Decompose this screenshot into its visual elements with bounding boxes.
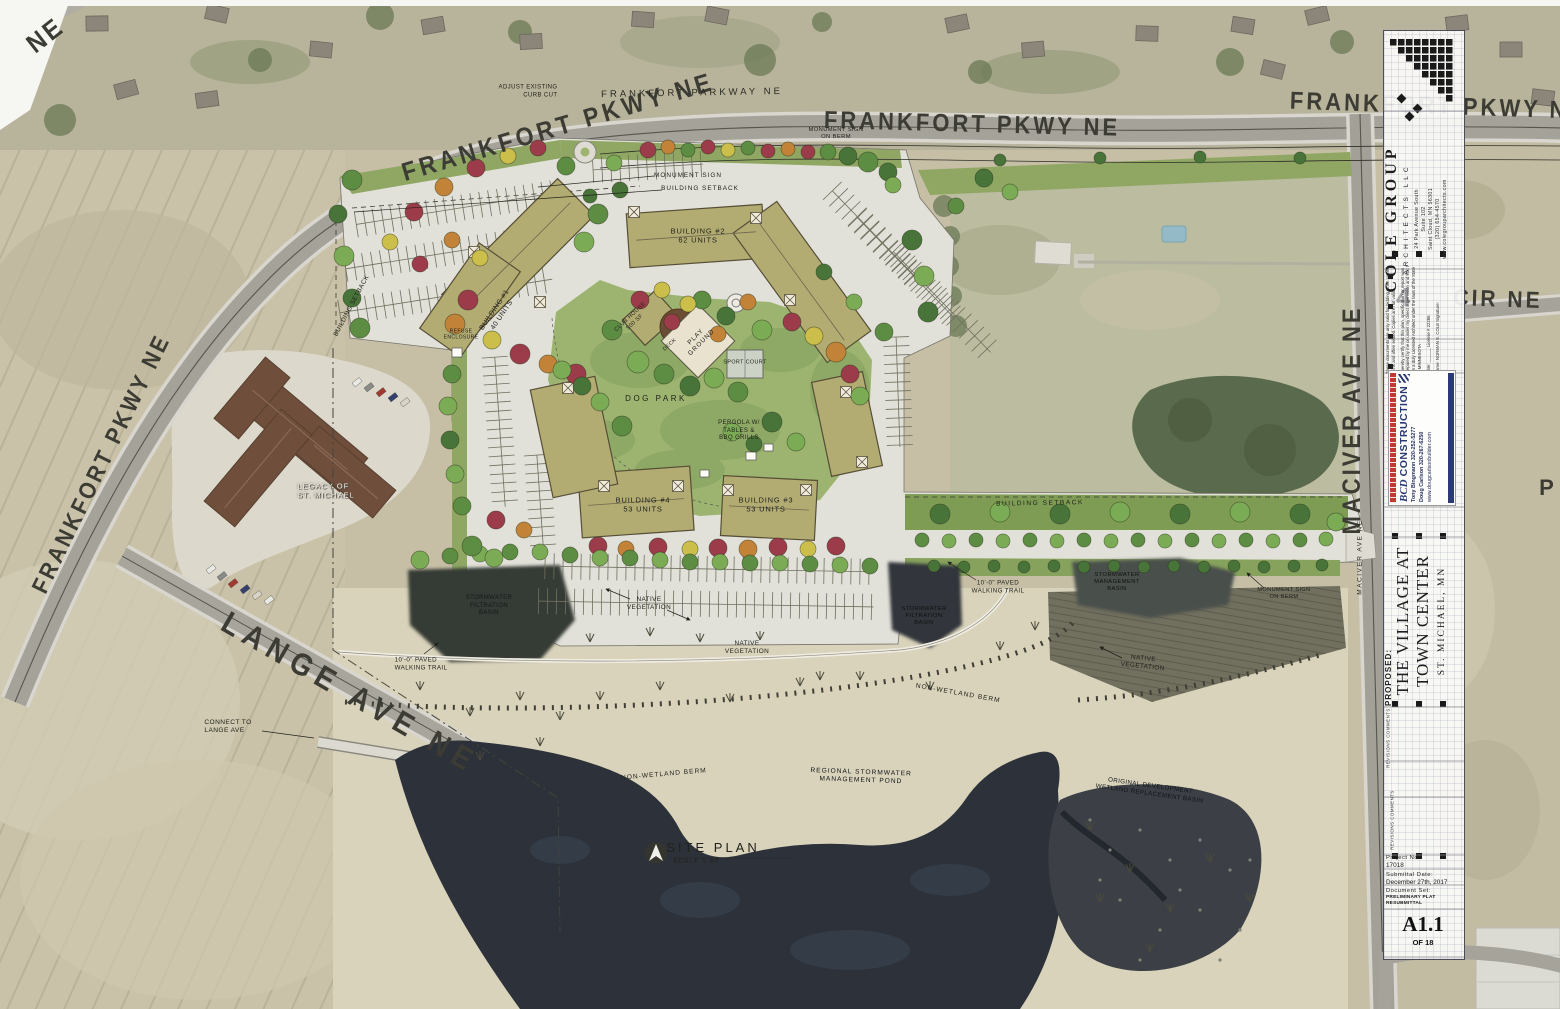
cert-statement: I hereby certify that this plan, specifi… (1400, 266, 1423, 374)
annotation-dog-park: DOG PARK (625, 394, 687, 404)
annotation-native-2: NATIVE VEGETATION (725, 640, 769, 656)
submittal-date-label: Submittal Date: (1386, 872, 1461, 879)
project-title-block: PROPOSED: THE VILLAGE AT TOWN CENTER ST.… (1383, 536, 1463, 706)
refuse-enclosure-icon (452, 348, 462, 357)
document-set-value: PRELIMINARY PLAT RESUBMITTAL (1386, 895, 1461, 907)
annotation-legacy: LEGACY OF ST. MICHAEL (297, 482, 354, 501)
site-plan-sheet: NE FRANKFORT PKWY NE FRANKFORT PKWY NE F… (0, 0, 1560, 1009)
submittal-date-value: December 27th, 2017 (1386, 879, 1461, 887)
annotation-native-1: NATIVE VEGETATION (627, 596, 671, 612)
annotation-trail-e: 10'-0" PAVED WALKING TRAIL (972, 579, 1025, 595)
construction-monogram: BCD (1398, 479, 1410, 502)
road-label-cir-ne: CIR NE (1453, 285, 1543, 314)
cert-license: License # 22286 (1426, 315, 1431, 347)
proposed-label: PROPOSED: (1384, 536, 1393, 706)
construction-name: CONSTRUCTION (1398, 386, 1410, 477)
project-city: ST. MICHAEL, MN (1437, 536, 1447, 706)
annotation-monument-nw: MONUMENT SIGN (654, 172, 722, 180)
annotation-monument-ne: MONUMENT SIGN ON BERM (808, 127, 863, 141)
annotation-connect-lange: CONNECT TO LANGE AVE (204, 719, 251, 735)
project-title-line-1: THE VILLAGE AT (1393, 536, 1413, 706)
annotation-pergola: PERGOLA W/ TABLES & BBQ GRILLS (718, 420, 760, 443)
cert-note: These documents are only valid for biddi… (1385, 266, 1397, 374)
annotation-sport-court: SPORT COURT (723, 360, 766, 367)
annotation-trail-w: 10'-0" PAVED WALKING TRAIL (395, 656, 448, 672)
annotation-building-3: BUILDING #3 53 UNITS (739, 496, 794, 515)
construction-website: www.dougcarlsonbuilder.com (1427, 374, 1435, 502)
revisions-label-1: REVISIONS COMMENTS (1386, 708, 1391, 768)
north-arrow-icon (645, 842, 667, 864)
project-info-block: Project No.: 17018 Submittal Date: Decem… (1386, 855, 1461, 907)
project-title-line-2: TOWN CENTER (1413, 536, 1433, 706)
annotation-setback-e: BUILDING SETBACK (996, 499, 1084, 509)
project-no-value: 17018 (1386, 862, 1461, 870)
drawn-label-maciver: MACIVER AVE NE (1357, 519, 1364, 594)
construction-card: BCD CONSTRUCTION Tony Bingmann 320-252-5… (1386, 372, 1456, 506)
construction-blue-bar (1448, 373, 1454, 503)
annotation-basin-e: STORMWATER MANAGEMENT BASIN (1094, 572, 1140, 594)
certification-block: These documents are only valid for biddi… (1383, 266, 1463, 374)
road-label-partial-p: P (1539, 475, 1557, 501)
annotation-building-4: BUILDING #4 53 UNITS (616, 496, 671, 515)
sheet-of: OF 18 (1383, 938, 1463, 947)
annotation-setback-n: BUILDING SETBACK (661, 185, 739, 193)
pool (1162, 226, 1186, 242)
annotation-site-plan-title: SITE PLAN (666, 840, 759, 856)
revisions-label-2: REVISIONS COMMENTS (1390, 790, 1395, 850)
annotation-adjust-curb: ADJUST EXISTING CURB CUT (499, 85, 558, 100)
annotation-building-2: BUILDING #2 62 UNITS (671, 227, 726, 246)
annotation-pond: REGIONAL STORMWATER MANAGEMENT POND (810, 767, 912, 787)
project-no-label: Project No.: (1386, 855, 1461, 862)
construction-flag-logo (1397, 374, 1410, 383)
annotation-basin-c: STORMWATER FILTRATION BASIN (901, 606, 946, 628)
annotation-basin-w: STORMWATER FILTRATION BASIN (466, 595, 513, 618)
construction-contact-1: Tony Bingmann 320-252-5277 (1411, 374, 1419, 502)
sheet-number: A1.1 (1383, 912, 1463, 937)
construction-contact-2: Doug Carlson 320-267-6250 (1419, 374, 1427, 502)
annotation-site-plan-scale: SCALE 1:60 (673, 858, 719, 866)
road-label-maciver: MACIVER AVE NE (1337, 305, 1366, 534)
annotation-monument-e: MONUMENT SIGN ON BERM (1257, 587, 1310, 601)
annotation-refuse: REFUSE ENCLOSURE (444, 329, 479, 342)
cert-name: Name: NORMAN E. COLE Signature: (1435, 266, 1441, 374)
